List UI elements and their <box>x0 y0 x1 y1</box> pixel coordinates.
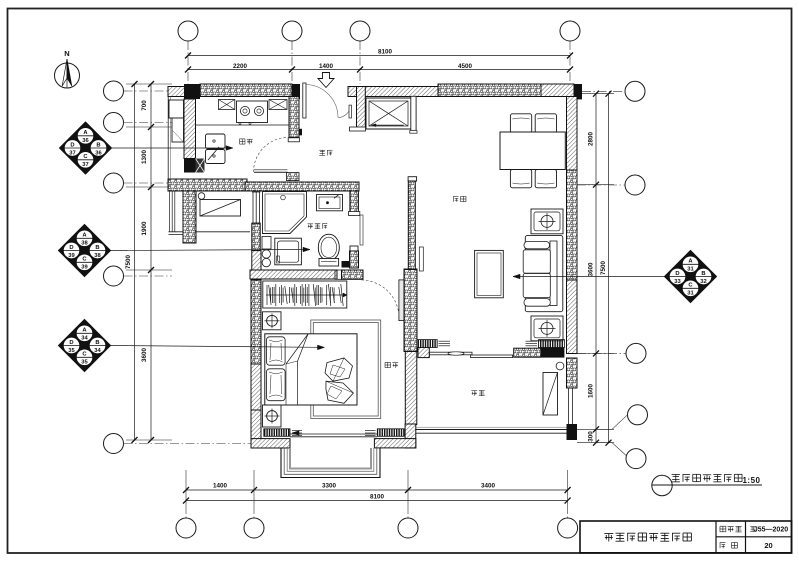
svg-text:N: N <box>64 49 69 58</box>
svg-text:3400: 3400 <box>481 483 496 490</box>
svg-text:34: 34 <box>94 348 101 354</box>
svg-text:J55—2020: J55—2020 <box>754 526 788 533</box>
svg-text:35: 35 <box>68 348 75 354</box>
svg-text:38: 38 <box>81 241 88 247</box>
svg-text:D: D <box>69 340 73 346</box>
svg-text:39: 39 <box>68 253 75 259</box>
svg-text:1300: 1300 <box>141 150 148 165</box>
svg-text:39: 39 <box>81 265 88 271</box>
svg-text:B: B <box>95 340 99 346</box>
svg-text:37: 37 <box>69 150 75 156</box>
svg-text:34: 34 <box>81 336 88 342</box>
svg-text:7500: 7500 <box>125 255 132 270</box>
svg-text:3600: 3600 <box>141 348 148 363</box>
svg-text:36: 36 <box>95 150 102 156</box>
svg-text:D: D <box>70 142 74 148</box>
svg-text:D: D <box>69 245 73 251</box>
svg-text:38: 38 <box>94 253 101 259</box>
svg-text:36: 36 <box>82 138 89 144</box>
svg-text:31: 31 <box>687 267 694 273</box>
svg-text:37: 37 <box>82 162 88 168</box>
svg-text:300: 300 <box>588 431 595 442</box>
svg-text:700: 700 <box>141 100 148 111</box>
svg-text:2800: 2800 <box>588 132 595 147</box>
svg-text:3300: 3300 <box>322 483 337 490</box>
svg-text:32: 32 <box>700 279 706 285</box>
svg-text:1600: 1600 <box>588 384 595 399</box>
svg-text:B: B <box>95 245 99 251</box>
svg-text:33: 33 <box>674 279 681 285</box>
svg-text:B: B <box>96 142 100 148</box>
svg-text:35: 35 <box>81 360 88 366</box>
svg-text:20: 20 <box>764 541 772 550</box>
svg-text:3600: 3600 <box>588 262 595 277</box>
svg-text:4500: 4500 <box>458 63 473 70</box>
svg-text:2200: 2200 <box>233 63 248 70</box>
svg-text:1900: 1900 <box>141 221 148 236</box>
svg-text:7500: 7500 <box>600 261 607 276</box>
svg-text:1400: 1400 <box>319 63 334 70</box>
svg-text:B: B <box>701 271 705 277</box>
svg-text:8100: 8100 <box>370 493 385 500</box>
svg-text:D: D <box>675 271 679 277</box>
svg-text:8100: 8100 <box>378 49 393 56</box>
svg-text:1400: 1400 <box>213 483 228 490</box>
svg-text:31: 31 <box>687 291 694 297</box>
svg-text:1:50: 1:50 <box>742 476 760 485</box>
